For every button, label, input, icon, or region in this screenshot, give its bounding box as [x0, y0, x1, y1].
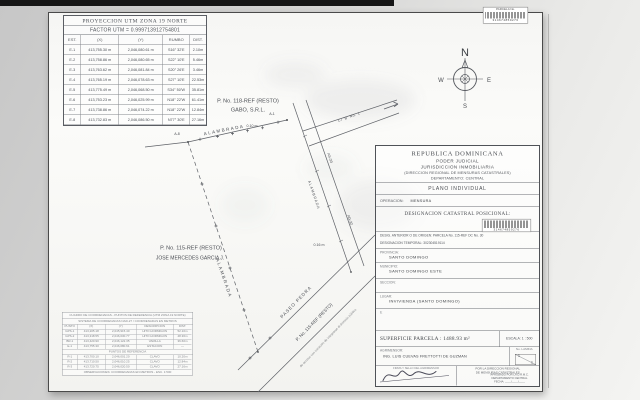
utm-factor: FACTOR UTM = 0.999713912754801	[64, 26, 206, 35]
table-row: E-7413,738.86 m2,046,074.22 mN18° 22'W12…	[64, 105, 206, 115]
operacion-label: OPERACION:	[380, 199, 404, 204]
barcode	[486, 12, 526, 19]
poder-judicial: PODER JUDICIAL	[376, 159, 539, 164]
table-row: E-2413,758.86 m2,046,080.65 mS22° 10'E5.…	[64, 55, 206, 65]
municipio-row: MUNICIPIO: SANTO DOMINGO ESTE	[376, 263, 539, 279]
plano-row: PLANO INDIVIDUAL	[376, 183, 539, 195]
table-row: E-3413,763.62 m2,046,081.84 mS20° 26'E3.…	[64, 65, 206, 75]
utm-table-title: PROYECCION UTM ZONA 19 NORTE	[64, 16, 206, 26]
barcode-sticker-designacion: 314674859276	[482, 219, 531, 232]
barcode-sticker-top: PARCELA No. 314674859276	[483, 7, 528, 27]
lamina-b: 1	[531, 361, 533, 365]
departamento: DEPARTAMENTO: CENTRAL	[376, 176, 539, 181]
parcel-118-label-line1: P. No. 118-REF (RESTO)	[217, 98, 279, 104]
empty-row: E	[376, 309, 539, 331]
scanned-cadastral-plan: N W E S PROYECCION UTM ZONA 19 NORTE FAC…	[0, 0, 640, 400]
designacion-posicional-row: DESIGNACION CATASTRAL POSICIONAL: 314674…	[376, 207, 539, 232]
offset-010-label: 0.10 m	[246, 124, 257, 128]
reference-points-table: CUADRO DE COORDENADAS - PUNTOS DE REFERE…	[62, 312, 193, 370]
escala-value: ESCALA: 1 : 500	[499, 331, 539, 347]
parcel-118-label-line2: GABO, S.R.L.	[231, 107, 265, 113]
designacion-posicional-title: DESIGNACION CATASTRAL POSICIONAL:	[376, 207, 539, 217]
title-block: REPUBLICA DOMINICANA PODER JUDICIAL JURI…	[375, 145, 539, 387]
seccion-label: SECCION:	[376, 279, 539, 285]
station-a1-label: A-1	[269, 112, 275, 116]
utm-col-x: (X)	[81, 35, 119, 45]
table-row: E-1413,755.30 m2,046,080.61 mS16° 32'E2.…	[64, 45, 206, 55]
utm-col-y: (Y)	[119, 35, 163, 45]
utm-col-rumbo: RUMBO	[163, 35, 190, 45]
station-a8-label: A-8	[174, 132, 180, 136]
firma-row: FIRMA Y SELLO DEL AGRIMENSOR POR LA DIRE…	[376, 366, 539, 386]
agrimensor-signature	[378, 365, 453, 385]
utm-col-est: EST.	[64, 35, 81, 45]
lamina-label: No. LAMINA	[510, 347, 540, 351]
seccion-row: SECCION:	[376, 279, 539, 293]
lugar-value: INVIVIENDA (SANTO DOMINGO)	[376, 299, 539, 304]
lamina-value-box: 1 1	[515, 354, 536, 365]
table-row: E-8413,732.83 m2,046,086.50 mN77° 30'E27…	[64, 115, 206, 125]
superficie-row: SUPERFICIE PARCELA : 1488.93 m² ESCALA: …	[376, 331, 539, 347]
plano-individual: PLANO INDIVIDUAL	[376, 183, 539, 195]
sticker-top-caption: PARCELA No.	[484, 8, 528, 12]
table-row: E-4413,765.19 m2,046,078.63 mS27° 10'E22…	[64, 75, 206, 85]
sticker-top-number: 314674859276	[484, 19, 528, 22]
operacion-row: OPERACION:MENSURA	[376, 195, 539, 207]
table-row: E-6413,753.23 m2,046,025.99 mN18° 22'W61…	[64, 95, 206, 105]
designacion-origen-row: DESIG. ANTERIOR O DE ORIGEN: PARCELA No.…	[376, 232, 539, 249]
ref-table-footer: OBSERVACIONES: COORDENADAS EN METROS - E…	[63, 370, 193, 375]
stray-mark: E	[376, 309, 539, 315]
superficie-value: SUPERFICIE PARCELA : 1488.93 m²	[376, 331, 499, 347]
title-block-header: REPUBLICA DOMINICANA PODER JUDICIAL JURI…	[376, 146, 539, 183]
utm-coordinates-table: PROYECCION UTM ZONA 19 NORTE FACTOR UTM …	[63, 15, 206, 130]
lugar-row: LUGAR: INVIVIENDA (SANTO DOMINGO)	[376, 293, 539, 309]
parcel-115-label-line1: P. No. 115-REF (RESTO)	[160, 245, 222, 251]
agrimensor-value: ING. LUIS CUEVAS FRETTOTTI DE GUZMAN	[376, 353, 509, 359]
approval-stamp: APROBADO POR LA D.R.M.C. DEPARTAMENTO CE…	[482, 374, 537, 385]
municipio-value: SANTO DOMINGO ESTE	[376, 269, 539, 274]
utm-col-dist: DIST.	[190, 35, 206, 45]
provincia-value: SANTO DOMINGO	[376, 255, 539, 260]
direccion-regional: (DIRECCION REGIONAL DE MENSURAS CATASTRA…	[376, 171, 539, 176]
agrimensor-row: AGRIMENSOR: ING. LUIS CUEVAS FRETTOTTI D…	[376, 347, 539, 366]
lamina-a: 1	[518, 355, 520, 359]
barcode	[484, 221, 529, 229]
provincia-row: PROVINCIA: SANTO DOMINGO	[376, 249, 539, 263]
offset-016-label: 0.16 m	[313, 243, 324, 247]
designacion-temporal: DESIGNACION TEMPORAL: 302304519114	[376, 240, 539, 248]
second-page-edge	[548, 14, 549, 388]
designacion-origen: DESIG. ANTERIOR O DE ORIGEN: PARCELA No.…	[376, 232, 539, 240]
table-row: E-5413,775.49 m2,046,068.50 mS34° 50'W35…	[64, 85, 206, 95]
operacion-value: MENSURA	[411, 199, 432, 204]
utm-header-row: EST. (X) (Y) RUMBO DIST.	[64, 35, 206, 45]
window-top-bar	[0, 0, 394, 6]
jurisdiccion: JURISDICCION INMOBILIARIA	[376, 165, 539, 170]
parcel-115-label-line2: JOSE MERCEDES GARCIA J.	[156, 255, 224, 261]
country-title: REPUBLICA DOMINICANA	[376, 146, 539, 158]
